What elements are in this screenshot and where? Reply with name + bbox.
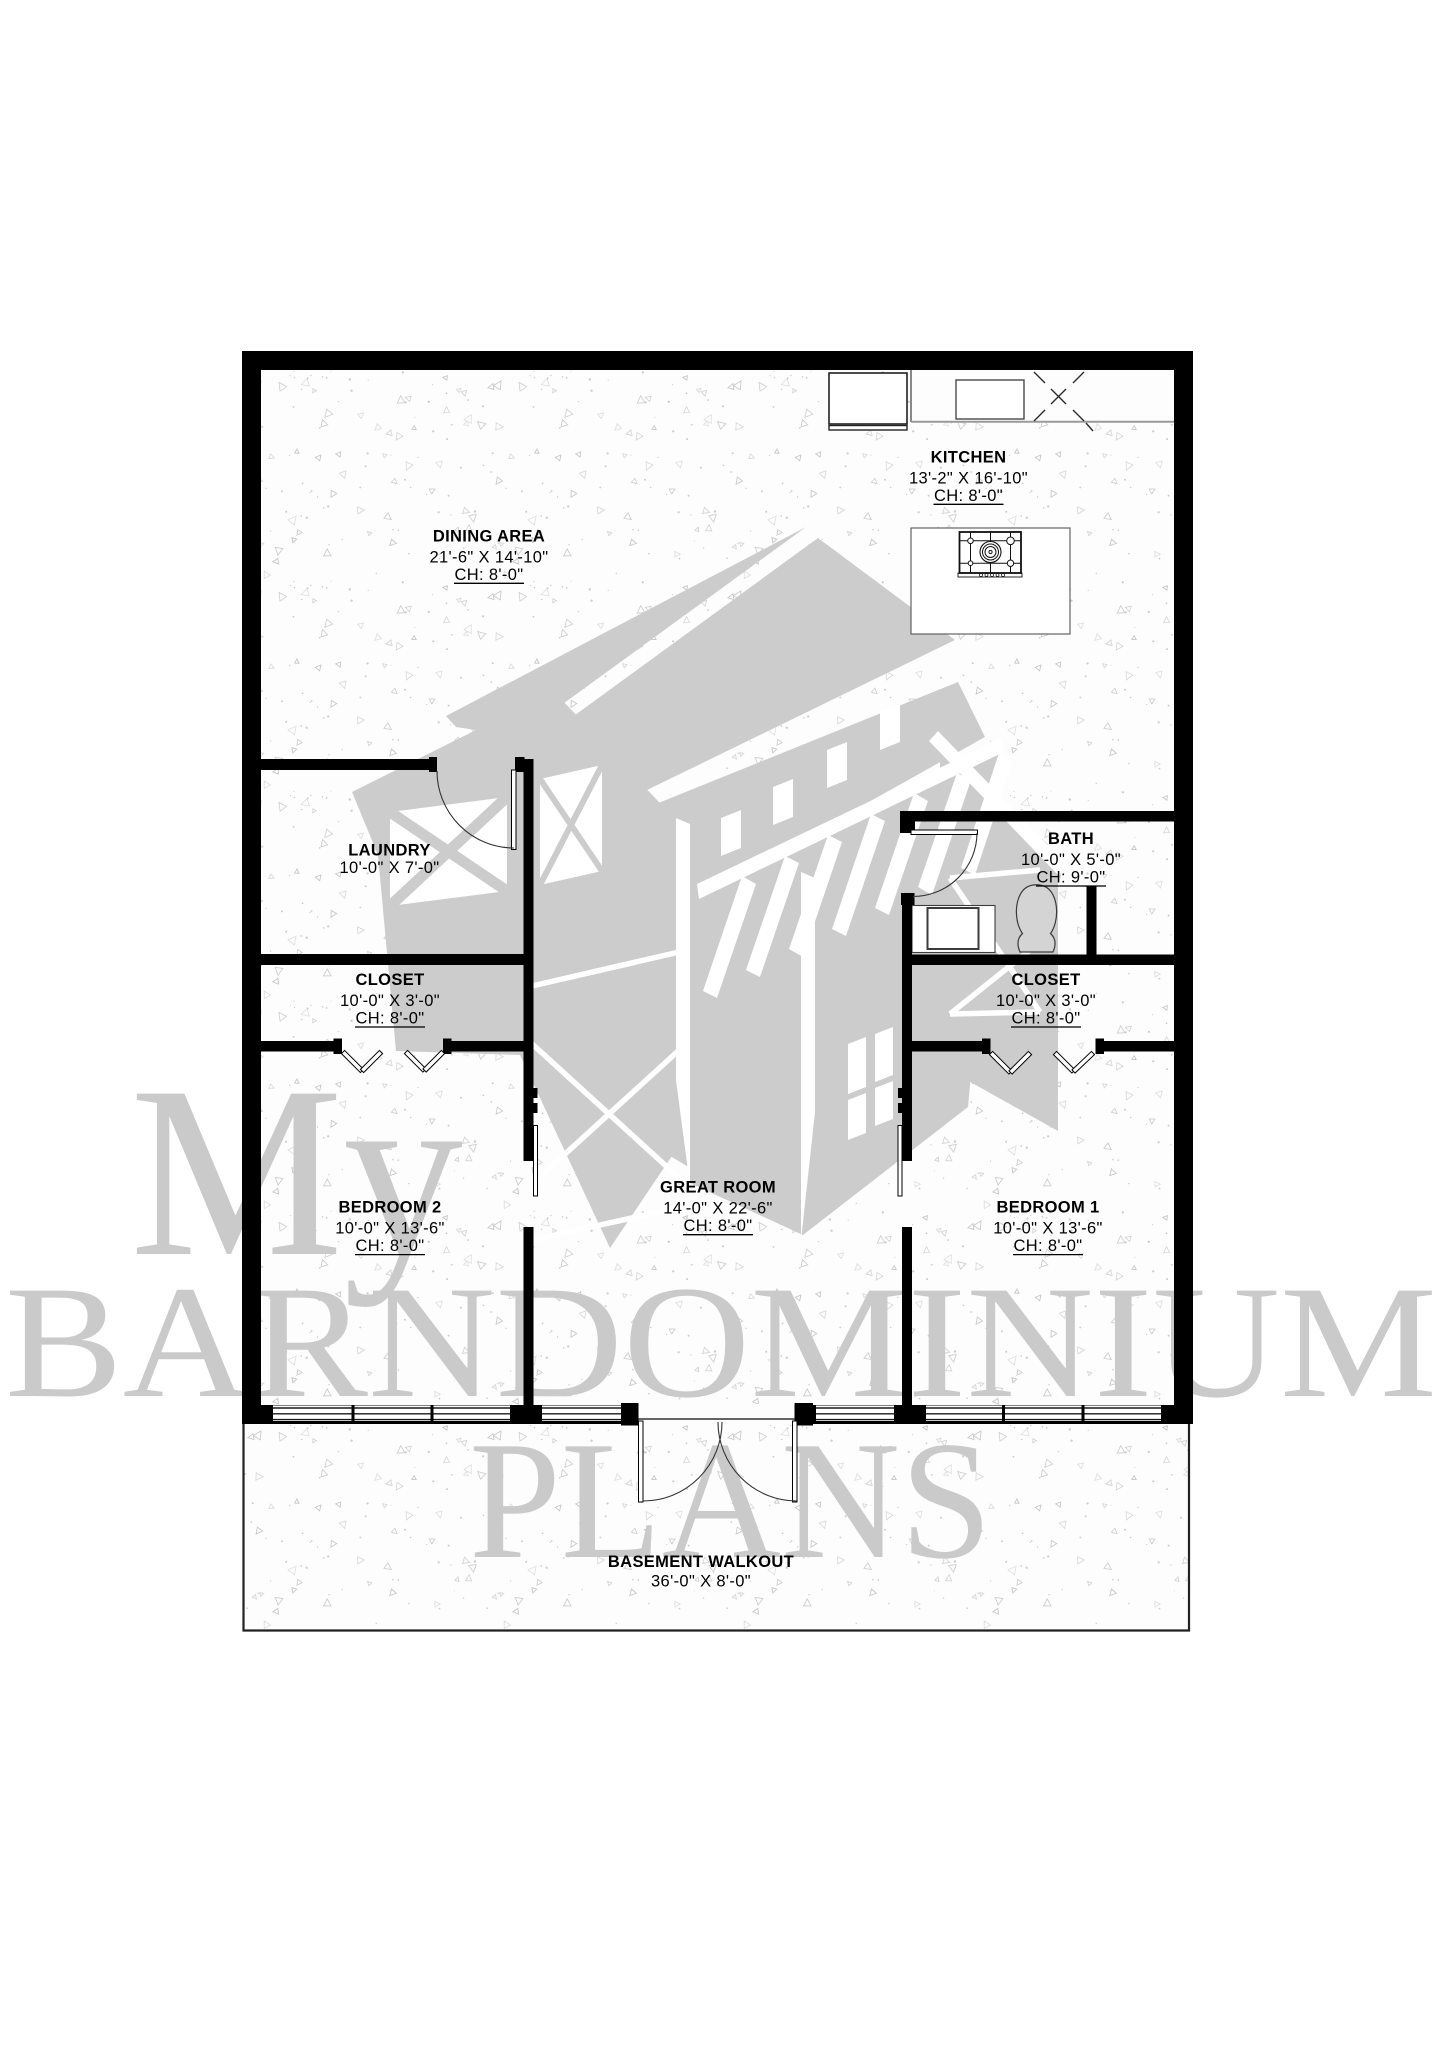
svg-text:CH: 9'-0": CH: 9'-0" (1036, 869, 1105, 887)
svg-text:GREAT ROOM: GREAT ROOM (660, 1179, 776, 1197)
svg-text:CH: 8'-0": CH: 8'-0" (454, 566, 523, 584)
svg-text:KITCHEN: KITCHEN (931, 448, 1007, 466)
svg-text:CH: 8'-0": CH: 8'-0" (683, 1217, 752, 1235)
svg-text:10'-0" X 7'-0": 10'-0" X 7'-0" (340, 859, 440, 877)
svg-text:10'-0" X 5'-0": 10'-0" X 5'-0" (1021, 851, 1121, 869)
svg-text:BEDROOM 2: BEDROOM 2 (338, 1199, 441, 1217)
svg-text:CLOSET: CLOSET (1011, 971, 1080, 989)
svg-text:14'-0" X 22'-6": 14'-0" X 22'-6" (663, 1200, 773, 1218)
svg-text:DINING AREA: DINING AREA (433, 527, 545, 545)
svg-text:CH: 8'-0": CH: 8'-0" (355, 1237, 424, 1255)
svg-text:10'-0" X 13'-6": 10'-0" X 13'-6" (993, 1220, 1103, 1238)
svg-text:CH: 8'-0": CH: 8'-0" (934, 487, 1003, 505)
svg-text:CH: 8'-0": CH: 8'-0" (355, 1010, 424, 1028)
svg-text:21'-6" X 14'-10": 21'-6" X 14'-10" (429, 548, 548, 566)
svg-text:CLOSET: CLOSET (355, 971, 424, 989)
svg-text:10'-0" X 3'-0": 10'-0" X 3'-0" (996, 992, 1096, 1010)
svg-text:BASEMENT WALKOUT: BASEMENT WALKOUT (608, 1553, 794, 1571)
svg-text:36'-0" X 8'-0": 36'-0" X 8'-0" (651, 1573, 751, 1591)
svg-text:LAUNDRY: LAUNDRY (348, 841, 431, 859)
svg-text:BEDROOM 1: BEDROOM 1 (996, 1199, 1099, 1217)
svg-text:13'-2" X 16'-10": 13'-2" X 16'-10" (909, 469, 1028, 487)
svg-text:CH: 8'-0": CH: 8'-0" (1013, 1237, 1082, 1255)
svg-text:10'-0" X 13'-6": 10'-0" X 13'-6" (335, 1220, 445, 1238)
svg-text:CH: 8'-0": CH: 8'-0" (1011, 1010, 1080, 1028)
svg-text:BATH: BATH (1048, 830, 1094, 848)
svg-text:10'-0" X 3'-0": 10'-0" X 3'-0" (340, 992, 440, 1010)
